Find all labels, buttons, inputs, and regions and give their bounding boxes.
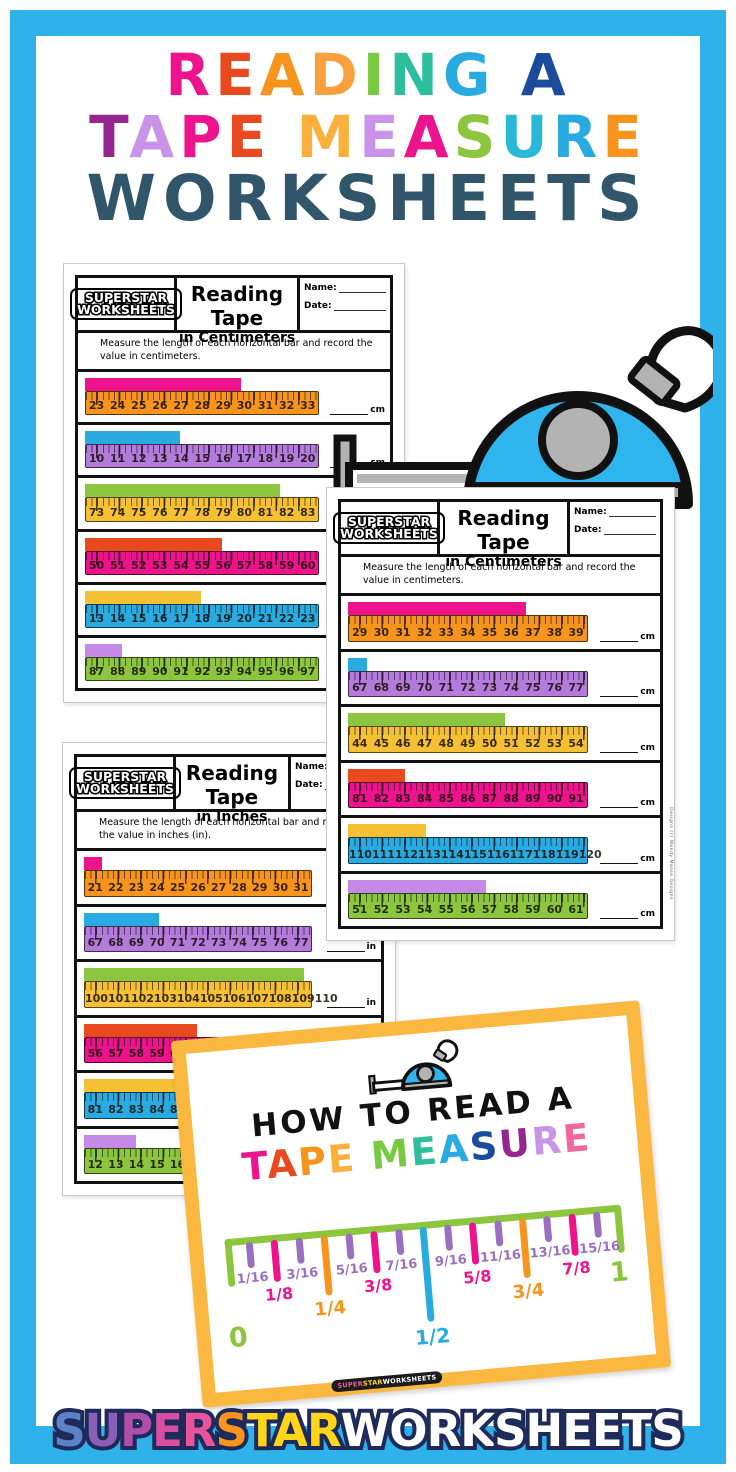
measure-bar: [348, 658, 367, 671]
ruler-number: 91: [173, 665, 188, 678]
main-title: READING A TAPE MEASURE WORKSHEETS: [36, 44, 700, 230]
title-letter: E: [227, 103, 272, 171]
ruler-number: 13: [152, 452, 167, 465]
ruler-number: 36: [504, 626, 519, 639]
ruler-number: 57: [482, 903, 497, 916]
ruler-number: 54: [568, 737, 583, 750]
tick-bar: [370, 1231, 381, 1273]
ruler-number: 78: [195, 506, 210, 519]
ruler-number: 20: [237, 612, 252, 625]
unit-label: cm: [640, 909, 655, 919]
footer-logo-letter: K: [460, 1404, 494, 1457]
ruler: 8182838485868788899091: [348, 782, 588, 809]
tick-bar: [271, 1240, 282, 1282]
ruler-number: 52: [374, 903, 389, 916]
ruler-number: 75: [131, 506, 146, 519]
answer-line: [600, 744, 638, 753]
name-label: Name:: [574, 507, 607, 517]
ruler-number: 59: [525, 903, 540, 916]
title-line-3: WORKSHEETS: [36, 168, 700, 230]
unit-label: cm: [640, 743, 655, 753]
title-letter: A: [129, 103, 179, 171]
brand-logo: SUPERSTARWORKSHEETS: [77, 757, 176, 809]
ruler-number: 24: [149, 881, 164, 894]
poster-letter: R: [530, 1117, 565, 1164]
ruler-number: 17: [237, 452, 252, 465]
ruler-numbers: 2122232425262728293031: [85, 881, 311, 894]
ruler-number: 31: [258, 399, 273, 412]
poster-letter: A: [265, 1141, 300, 1188]
pin-image: READING A TAPE MEASURE WORKSHEETS SUPERS…: [0, 0, 736, 1472]
worksheet-instructions: Measure the length of each horizontal ba…: [341, 557, 660, 596]
ruler-number: 73: [211, 936, 226, 949]
unit-label: cm: [640, 632, 655, 642]
tick-label: 3/8: [363, 1275, 393, 1296]
ruler-number: 14: [173, 452, 188, 465]
ruler-number: 50: [89, 559, 104, 572]
worksheet-centimeters-2: SUPERSTARWORKSHEETSReading Tapein Centim…: [326, 487, 675, 941]
ruler-numbers: 5152535455565758596061: [349, 903, 587, 916]
poster-letter: E: [409, 1128, 441, 1174]
ruler-number: 15: [195, 452, 210, 465]
ruler-number: 77: [173, 506, 188, 519]
ruler-numbers: 100101102103104105106107108109110: [85, 992, 311, 1005]
measure-bar: [348, 713, 505, 726]
ruler-number: 74: [504, 681, 519, 694]
ruler-number: 14: [110, 612, 125, 625]
measure-bar: [348, 602, 526, 615]
footer-logo-letter: A: [273, 1404, 307, 1457]
ruler-number: 51: [504, 737, 519, 750]
ruler-number: 29: [352, 626, 367, 639]
ruler-numbers: 110111112113114115116117118119120: [349, 848, 587, 861]
ruler-number: 111: [372, 848, 395, 861]
ruler-number: 38: [547, 626, 562, 639]
brand-logo: SUPERSTARWORKSHEETS: [341, 502, 440, 554]
ruler-number: 75: [525, 681, 540, 694]
tick-bar: [296, 1237, 305, 1264]
ruler-number: 55: [439, 903, 454, 916]
ruler-number: 46: [395, 737, 410, 750]
poster-one-label: 1: [609, 1256, 630, 1289]
ruler-number: 68: [108, 936, 123, 949]
name-label-line: [339, 283, 386, 293]
ruler-number: 14: [129, 1158, 144, 1171]
answer-blank: cm: [600, 909, 655, 919]
ruler-number: 61: [568, 903, 583, 916]
ruler-row: 4445464748495051525354cm: [341, 707, 660, 763]
title-letter: E: [602, 103, 647, 171]
ruler-number: 88: [504, 792, 519, 805]
footer-logo-letter: T: [247, 1404, 273, 1457]
ruler: 6768697071727374757677: [84, 926, 312, 953]
ruler-number: 53: [152, 559, 167, 572]
ruler-number: 55: [195, 559, 210, 572]
footer-logo-letter: E: [562, 1404, 592, 1457]
ruler-number: 20: [300, 452, 315, 465]
ruler-number: 102: [131, 992, 154, 1005]
ruler: 5051525354555657585960: [85, 551, 319, 575]
footer-logo-letter: U: [85, 1404, 121, 1457]
ruler-number: 23: [129, 881, 144, 894]
ruler-number: 117: [510, 848, 533, 861]
tick-label: 1/2: [414, 1323, 451, 1350]
worksheet-title-line1: Reading Tape: [176, 761, 288, 809]
ruler-number: 81: [258, 506, 273, 519]
ruler-number: 94: [237, 665, 252, 678]
ruler-number: 29: [252, 881, 267, 894]
ruler-number: 59: [149, 1047, 164, 1060]
title-line-1: READING A: [36, 44, 700, 106]
answer-blank: cm: [600, 798, 655, 808]
ruler-numbers: 6768697071727374757677: [85, 936, 311, 949]
ruler-number: 24: [110, 399, 125, 412]
ruler-number: 22: [108, 881, 123, 894]
ruler-number: 22: [279, 612, 294, 625]
ruler-number: 15: [149, 1158, 164, 1171]
ruler-numbers: 5051525354555657585960: [86, 559, 318, 572]
measure-bar: [85, 484, 280, 497]
badge-word: STAR: [363, 1378, 383, 1388]
ruler-number: 51: [110, 559, 125, 572]
ruler-number: 28: [232, 881, 247, 894]
ruler-number: 106: [223, 992, 246, 1005]
worksheet-title-line1: Reading Tape: [440, 506, 567, 554]
tick-bar: [395, 1229, 404, 1256]
ruler-number: 72: [190, 936, 205, 949]
answer-blank: cm: [600, 687, 655, 697]
worksheet-title-line1: Reading Tape: [177, 282, 297, 330]
footer-logo-letter: T: [622, 1404, 652, 1457]
ruler-number: 33: [439, 626, 454, 639]
answer-line: [600, 855, 638, 864]
ruler-number: 68: [374, 681, 389, 694]
ruler-number: 105: [200, 992, 223, 1005]
ruler-number: 86: [460, 792, 475, 805]
ruler-number: 56: [460, 903, 475, 916]
ruler-number: 56: [88, 1047, 103, 1060]
ruler-number: 37: [525, 626, 540, 639]
tick-label: 1/8: [264, 1284, 294, 1305]
measure-bar: [348, 880, 486, 893]
ruler-number: 18: [258, 452, 273, 465]
ruler-number: 89: [525, 792, 540, 805]
title-letter: R: [553, 103, 603, 171]
answer-blank: in: [327, 998, 377, 1008]
ruler-number: 109: [292, 992, 315, 1005]
ruler-number: 103: [154, 992, 177, 1005]
measure-bar: [84, 913, 159, 926]
ruler-number: 33: [300, 399, 315, 412]
footer-logo-letter: W: [341, 1404, 390, 1457]
ruler-numbers: 8182838485868788899091: [349, 792, 587, 805]
title-letter: [271, 103, 296, 171]
footer-logo-letter: S: [53, 1404, 84, 1457]
ruler-number: 21: [258, 612, 273, 625]
measure-bar: [85, 591, 201, 604]
ruler-number: 84: [417, 792, 432, 805]
title-letter: M: [296, 103, 359, 171]
poster-letter: P: [296, 1138, 330, 1184]
ruler-number: 76: [547, 681, 562, 694]
ruler-number: 87: [482, 792, 497, 805]
footer-logo-letter: H: [526, 1404, 563, 1457]
footer-logo-letter: P: [120, 1404, 152, 1457]
measure-bar: [85, 644, 122, 657]
ruler-number: 115: [464, 848, 487, 861]
measure-bar: [85, 378, 241, 391]
ruler-number: 89: [131, 665, 146, 678]
worksheet-header: SUPERSTARWORKSHEETSReading Tapein Centim…: [341, 502, 660, 557]
date-label-row: Date:: [304, 301, 386, 311]
title-letter: P: [179, 103, 227, 171]
mini-tape-measure-icon: [364, 1038, 464, 1098]
poster-letter: U: [497, 1120, 534, 1167]
ruler-number: 52: [131, 559, 146, 572]
ruler-number: 56: [216, 559, 231, 572]
measure-bar: [84, 1024, 197, 1037]
name-label-row: Name:: [304, 283, 386, 293]
ruler-number: 104: [177, 992, 200, 1005]
ruler-number: 60: [547, 903, 562, 916]
ruler-number: 54: [417, 903, 432, 916]
ruler-number: 79: [216, 506, 231, 519]
badge-word: WORKSHEETS: [382, 1373, 436, 1386]
worksheet-title: Reading Tapein Inches: [176, 757, 288, 809]
poster-letter: E: [561, 1115, 593, 1161]
answer-line: [600, 910, 638, 919]
poster-ruler-diagram: 011/161/83/161/45/163/87/161/29/165/811/…: [224, 1205, 634, 1389]
ruler-number: 116: [487, 848, 510, 861]
tick-label: 15/16: [579, 1239, 621, 1258]
ruler-number: 31: [395, 626, 410, 639]
ruler-number: 114: [441, 848, 464, 861]
ruler-number: 80: [237, 506, 252, 519]
ruler: 2930313233343536373839: [348, 615, 588, 642]
answer-blank: cm: [600, 743, 655, 753]
worksheet-title: Reading Tapein Centimeters: [440, 502, 567, 554]
tick-bar: [345, 1233, 354, 1260]
footer-logo-letter: R: [182, 1404, 216, 1457]
tick-bar: [593, 1211, 602, 1238]
title-letter: E: [215, 41, 260, 109]
ruler-number: 53: [395, 903, 410, 916]
worksheet-table: SUPERSTARWORKSHEETSReading Tapein Centim…: [338, 499, 663, 929]
ruler-number: 11: [110, 452, 125, 465]
title-letter: D: [310, 41, 363, 109]
ruler-number: 44: [352, 737, 367, 750]
side-credit-text: Designs (c) Wendy Moose Designs: [668, 807, 673, 900]
ruler-number: 25: [131, 399, 146, 412]
ruler-numbers: 2930313233343536373839: [349, 626, 587, 639]
title-letter: S: [454, 103, 501, 171]
ruler-number: 12: [131, 452, 146, 465]
ruler-number: 45: [374, 737, 389, 750]
poster-letter: T: [240, 1143, 269, 1189]
ruler-number: 52: [525, 737, 540, 750]
ruler-number: 32: [279, 399, 294, 412]
ruler-number: 71: [439, 681, 454, 694]
ruler-number: 113: [418, 848, 441, 861]
ruler-number: 39: [568, 626, 583, 639]
ruler-number: 74: [110, 506, 125, 519]
poster-zero-label: 0: [228, 1322, 249, 1355]
ruler-number: 76: [152, 506, 167, 519]
footer-logo-letter: O: [389, 1404, 426, 1457]
ruler: 6768697071727374757677: [348, 671, 588, 698]
ruler-number: 70: [149, 936, 164, 949]
ruler-number: 83: [300, 506, 315, 519]
ruler-number: 75: [252, 936, 267, 949]
ruler-number: 83: [395, 792, 410, 805]
measure-bar: [84, 1135, 136, 1148]
ruler-number: 81: [352, 792, 367, 805]
measure-bar: [84, 968, 304, 981]
tick-bar: [494, 1220, 503, 1247]
ruler: 5152535455565758596061: [348, 893, 588, 920]
measure-bar: [85, 431, 180, 444]
ruler-number: 50: [482, 737, 497, 750]
ruler-number: 112: [395, 848, 418, 861]
unit-label: cm: [640, 798, 655, 808]
ruler-row: 2930313233343536373839cm: [341, 596, 660, 652]
ruler-number: 108: [269, 992, 292, 1005]
ruler-number: 97: [300, 665, 315, 678]
ruler-number: 31: [293, 881, 308, 894]
footer-logo: SUPERSTARWORKSHEETS: [0, 1404, 736, 1457]
ruler-number: 77: [568, 681, 583, 694]
tick-label: 7/8: [562, 1258, 592, 1279]
ruler-number: 13: [89, 612, 104, 625]
footer-logo-letter: S: [216, 1404, 247, 1457]
title-letter: N: [389, 41, 443, 109]
name-label-line: [609, 507, 656, 517]
title-letter: G: [443, 41, 496, 109]
poster-letter: E: [326, 1136, 358, 1182]
brand-line-2: WORKSHEETS: [77, 304, 175, 316]
ruler-number: 58: [258, 559, 273, 572]
measure-bar: [348, 769, 405, 782]
ruler-number: 81: [88, 1103, 103, 1116]
brand-line-2: WORKSHEETS: [76, 783, 174, 795]
ruler-rows: 2930313233343536373839cm6768697071727374…: [341, 596, 660, 926]
ruler-number: 57: [108, 1047, 123, 1060]
footer-logo-letter: S: [651, 1404, 682, 1457]
ruler-number: 47: [417, 737, 432, 750]
ruler-number: 119: [556, 848, 579, 861]
unit-label: cm: [640, 854, 655, 864]
ruler-numbers: 1011121314151617181920: [86, 452, 318, 465]
answer-line: [327, 943, 365, 952]
ruler-number: 84: [149, 1103, 164, 1116]
tick-label: 5/8: [462, 1266, 492, 1287]
ruler-numbers: 1314151617181920212223: [86, 612, 318, 625]
ruler-number: 30: [374, 626, 389, 639]
ruler-number: 23: [89, 399, 104, 412]
ruler-row: 8182838485868788899091cm: [341, 763, 660, 819]
ruler-number: 88: [110, 665, 125, 678]
answer-blank: in: [327, 942, 377, 952]
ruler: 7374757677787980818283: [85, 497, 319, 521]
tick-label: 3/4: [512, 1280, 545, 1304]
ruler-number: 77: [293, 936, 308, 949]
ruler-number: 92: [195, 665, 210, 678]
title-letter: I: [363, 41, 390, 109]
footer-logo-letter: R: [307, 1404, 341, 1457]
ruler-number: 58: [129, 1047, 144, 1060]
brand-logo-box: SUPERSTARWORKSHEETS: [333, 512, 445, 544]
title-letter: [496, 41, 521, 109]
ruler-number: 21: [88, 881, 103, 894]
ruler-number: 15: [131, 612, 146, 625]
measure-bar: [348, 824, 426, 837]
answer-blank: cm: [600, 632, 655, 642]
ruler-number: 74: [232, 936, 247, 949]
name-label: Name:: [304, 283, 337, 293]
ruler-number: 67: [352, 681, 367, 694]
measure-bar: [84, 857, 102, 870]
ruler-number: 17: [173, 612, 188, 625]
ruler: 4445464748495051525354: [348, 726, 588, 753]
answer-blank: cm: [600, 854, 655, 864]
name-date-box: Name:Date:: [567, 502, 660, 554]
ruler-number: 58: [504, 903, 519, 916]
date-label: Date:: [295, 780, 323, 790]
ruler-number: 32: [417, 626, 432, 639]
ruler-number: 30: [273, 881, 288, 894]
ruler-number: 100: [85, 992, 108, 1005]
unit-label: in: [367, 942, 377, 952]
ruler-number: 54: [173, 559, 188, 572]
title-letter: A: [404, 103, 454, 171]
ruler-number: 67: [88, 936, 103, 949]
ruler-number: 19: [279, 452, 294, 465]
ruler: 100101102103104105106107108109110: [84, 981, 312, 1008]
worksheet-title: Reading Tapein Centimeters: [177, 278, 297, 330]
date-label: Date:: [304, 301, 332, 311]
poster-letter: A: [437, 1126, 472, 1173]
ruler-row: 6768697071727374757677cm: [341, 652, 660, 708]
ruler-number: 26: [190, 881, 205, 894]
unit-label: in: [367, 998, 377, 1008]
ruler-number: 27: [211, 881, 226, 894]
ruler-number: 12: [88, 1158, 103, 1171]
unit-label: cm: [640, 687, 655, 697]
ruler-number: 13: [108, 1158, 123, 1171]
ruler-number: 53: [547, 737, 562, 750]
ruler-numbers: 8788899091929394959697: [86, 665, 318, 678]
ruler-number: 35: [482, 626, 497, 639]
poster-letter: S: [468, 1123, 501, 1169]
ruler-number: 16: [152, 612, 167, 625]
ruler-number: 69: [395, 681, 410, 694]
ruler-number: 10: [89, 452, 104, 465]
ruler-number: 91: [568, 792, 583, 805]
ruler-number: 49: [460, 737, 475, 750]
ruler-number: 120: [579, 848, 602, 861]
answer-line: [327, 999, 365, 1008]
ruler-number: 23: [300, 612, 315, 625]
date-label-line: [604, 525, 656, 535]
ruler-row: 5152535455565758596061cm: [341, 874, 660, 927]
ruler-number: 28: [195, 399, 210, 412]
answer-line: [600, 633, 638, 642]
answer-line: [600, 799, 638, 808]
ruler-number: 27: [173, 399, 188, 412]
date-label-row: Date:: [574, 525, 656, 535]
how-to-read-poster: HOW TO READ A TAPE MEASURE 011/161/83/16…: [171, 1000, 671, 1408]
footer-logo-letter: E: [592, 1404, 622, 1457]
